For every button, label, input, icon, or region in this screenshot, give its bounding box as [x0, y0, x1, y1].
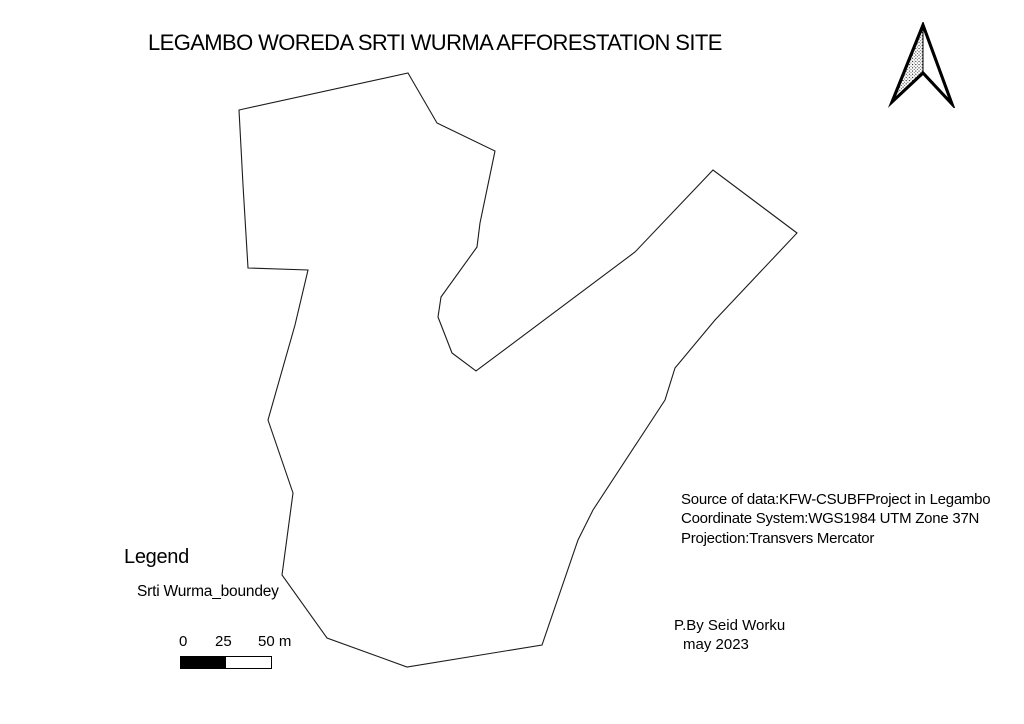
legend-item-boundary-label: Srti Wurma_boundey: [137, 583, 279, 601]
source-info-line-projection: Projection:Transvers Mercator: [681, 529, 990, 548]
scale-bar-empty-segment: [226, 657, 271, 668]
source-info: Source of data:KFW-CSUBFProject in Legam…: [681, 490, 990, 548]
site-boundary-polygon: [239, 73, 797, 667]
credit-author: P.By Seid Worku: [674, 616, 785, 635]
source-info-line-coordinate-system: Coordinate System:WGS1984 UTM Zone 37N: [681, 509, 990, 528]
scale-tick-25: 25: [215, 633, 232, 650]
scale-bar-track: [180, 656, 272, 669]
credit-date: may 2023: [683, 635, 785, 654]
site-boundary-map: [0, 0, 1024, 724]
credit: P.By Seid Worku may 2023: [674, 616, 785, 654]
map-layout-page: LEGAMBO WOREDA SRTI WURMA AFFORESTATION …: [0, 0, 1024, 724]
legend: Legend Srti Wurma_boundey: [124, 546, 279, 601]
scale-tick-50m: 50 m: [258, 633, 291, 650]
source-info-line-source: Source of data:KFW-CSUBFProject in Legam…: [681, 490, 990, 509]
scale-bar-filled-segment: [181, 657, 226, 668]
scale-bar: 0 25 50 m: [170, 633, 300, 673]
legend-heading: Legend: [124, 546, 279, 569]
scale-tick-0: 0: [179, 633, 187, 650]
